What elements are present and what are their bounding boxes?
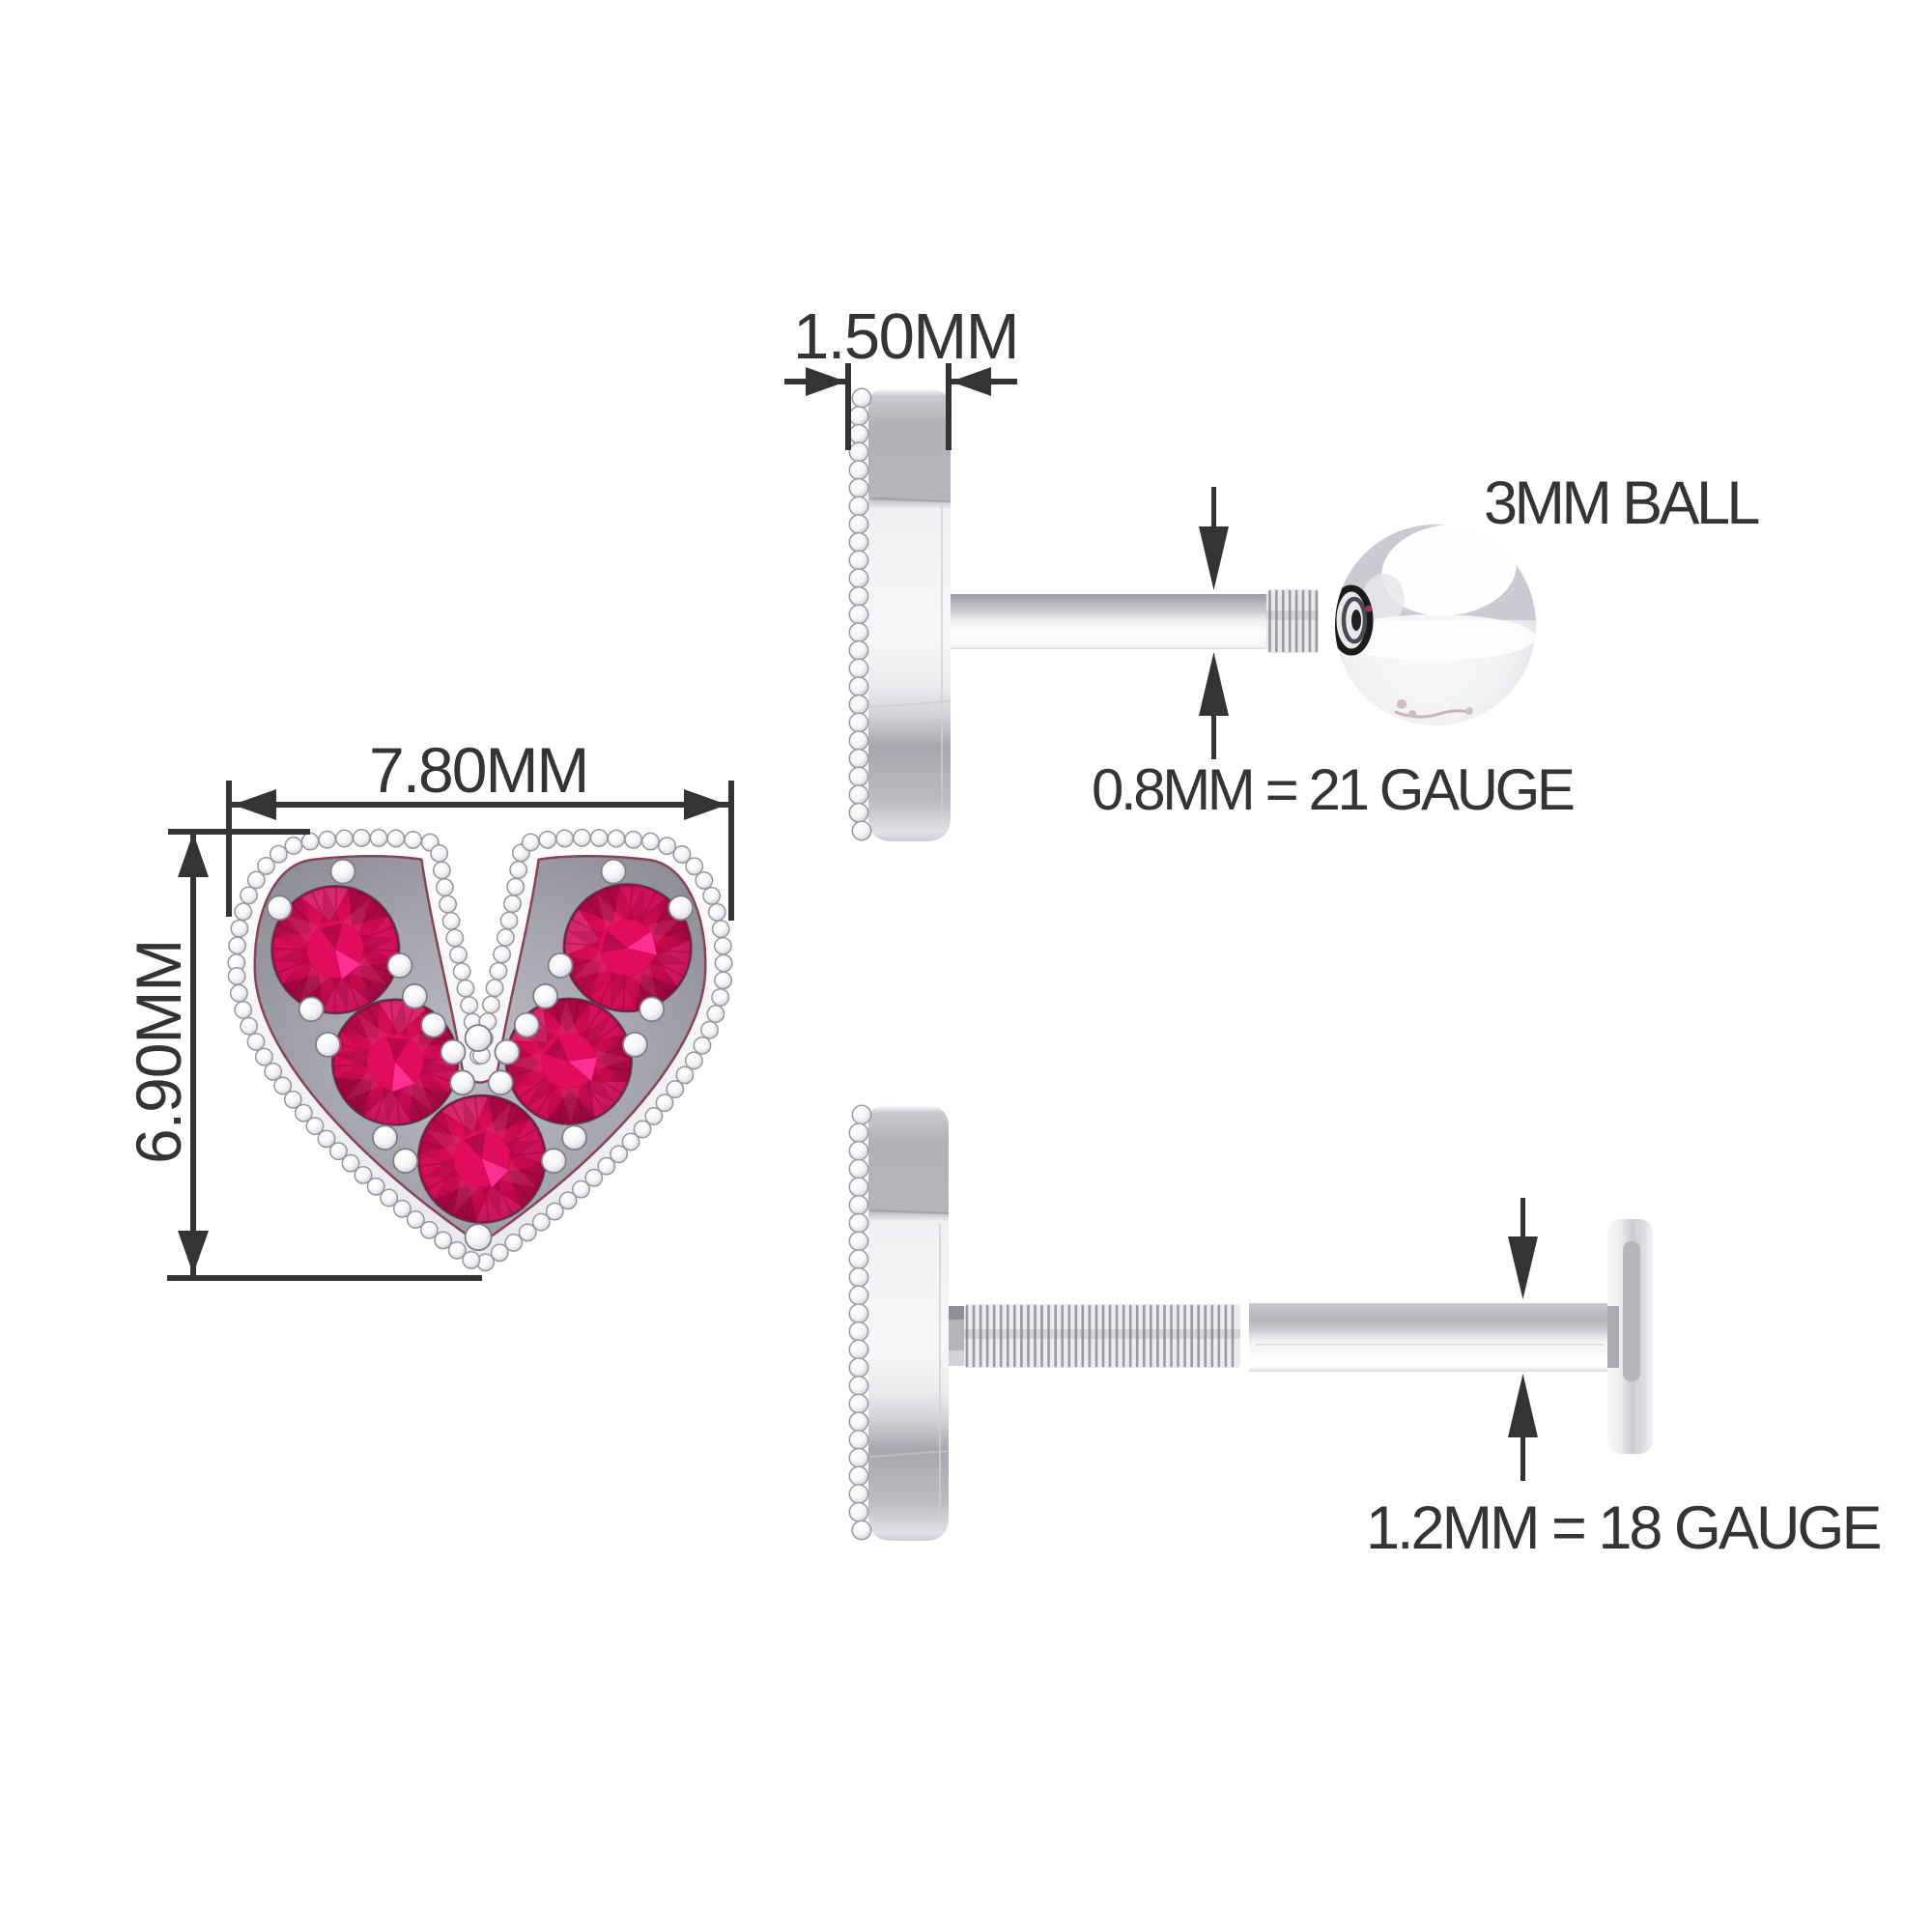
svg-text:7.80MM: 7.80MM [369,734,587,806]
svg-text:3MM BALL: 3MM BALL [1484,469,1758,537]
svg-text:1.50MM: 1.50MM [793,300,1018,373]
svg-text:6.90MM: 6.90MM [123,940,194,1164]
svg-text:1.2MM = 18 GAUGE: 1.2MM = 18 GAUGE [1366,1494,1880,1562]
svg-text:0.8MM = 21 GAUGE: 0.8MM = 21 GAUGE [1092,757,1574,822]
